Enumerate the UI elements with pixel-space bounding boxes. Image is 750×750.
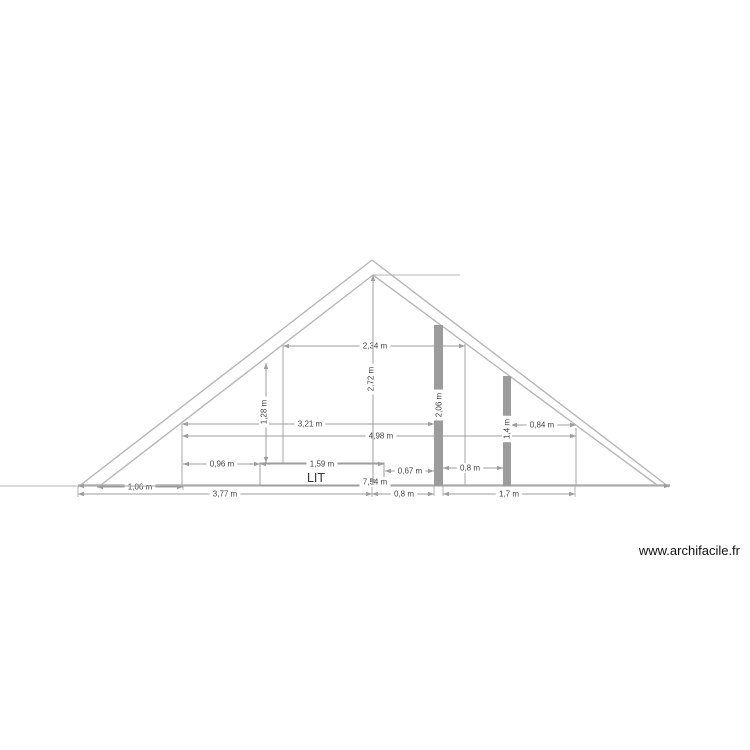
dim-084m-3-label: 0,84 m (527, 420, 558, 430)
dim-08m-7-arrow-left (443, 466, 449, 470)
room-label: LIT (307, 471, 325, 485)
dim-377m-10-arrow-left (78, 492, 84, 496)
dim-234m-0-label: 2,34 m (360, 341, 391, 351)
dim-08m-11-label: 0,8 m (391, 489, 417, 499)
dim-067m-6-arrow-right (428, 469, 434, 473)
dim-067m-6-label: 0,67 m (395, 466, 426, 476)
dim-106m-8-label-text: 1,06 m (128, 483, 153, 492)
dim-106m-8-label: 1,06 m (125, 482, 156, 492)
dim-321m-1-arrow-right (428, 422, 434, 426)
dim-377m-10-label-text: 3,77 m (213, 490, 238, 499)
roof-outer-left-line (78, 260, 372, 487)
dim-128m-1-arrow-top (264, 363, 268, 369)
dim-498m-2-label: 4,98 m (366, 431, 397, 441)
dim-754m-9-label: 7,54 m (360, 477, 391, 487)
dim-17m-12-arrow-left (443, 492, 449, 496)
post-short-label: 1,4 m (502, 416, 512, 442)
watermark: www.archifacile.fr (639, 543, 740, 558)
roof-inner-left-line (101, 275, 373, 485)
roof-inner-right-line (373, 275, 657, 485)
dim-754m-9-label-text: 7,54 m (363, 478, 388, 487)
roof-outer-right-line (372, 260, 669, 487)
dim-08m-11-arrow-right (428, 492, 434, 496)
dim-272m-0-label-text: 2,72 m (367, 366, 376, 391)
dim-067m-6-arrow-left (385, 469, 391, 473)
dim-234m-0-arrow-right (459, 344, 465, 348)
dim-067m-6-label-text: 0,67 m (398, 467, 423, 476)
dim-234m-0-label-text: 2,34 m (363, 342, 388, 351)
roof-section-drawing: 2,34 m3,21 m4,98 m0,84 m0,96 m1,59 m0,67… (0, 0, 750, 750)
dim-17m-12-label-text: 1,7 m (499, 490, 519, 499)
dim-498m-2-label-text: 4,98 m (369, 432, 394, 441)
dim-096m-4-arrow-right (254, 462, 260, 466)
dim-272m-0-label: 2,72 m (366, 364, 376, 395)
dim-321m-1-label-text: 3,21 m (298, 420, 323, 429)
dim-377m-10-arrow-right (366, 492, 372, 496)
post-tall-label: 2,06 m (434, 390, 444, 421)
dim-128m-1-arrow-bottom (264, 457, 268, 463)
dim-17m-12-label: 1,7 m (496, 489, 522, 499)
dim-159m-5-label-text: 1,59 m (310, 460, 335, 469)
dim-17m-12-arrow-right (569, 492, 575, 496)
dim-321m-1-label: 3,21 m (295, 419, 326, 429)
dim-498m-2-arrow-left (182, 434, 188, 438)
dim-128m-1-label: 1,28 m (259, 397, 269, 428)
dim-08m-7-label-text: 0,8 m (460, 464, 480, 473)
dim-159m-5-label: 1,59 m (307, 459, 338, 469)
dim-08m-7-label: 0,8 m (457, 463, 483, 473)
room-label-text: LIT (307, 471, 325, 485)
dim-096m-4-arrow-left (183, 462, 189, 466)
dim-096m-4-label-text: 0,96 m (210, 460, 235, 469)
archifacile-plan-page: 2,34 m3,21 m4,98 m0,84 m0,96 m1,59 m0,67… (0, 0, 750, 750)
dim-08m-11-label-text: 0,8 m (394, 490, 414, 499)
dim-08m-7-arrow-right (497, 466, 503, 470)
dim-377m-10-label: 3,77 m (210, 489, 241, 499)
post-short-label-text: 1,4 m (503, 419, 512, 439)
dim-498m-2-arrow-right (570, 434, 576, 438)
dim-08m-11-arrow-left (372, 492, 378, 496)
dim-096m-4-label: 0,96 m (207, 459, 238, 469)
dim-084m-3-label-text: 0,84 m (530, 421, 555, 430)
post-tall-label-text: 2,06 m (435, 392, 444, 417)
dim-128m-1-label-text: 1,28 m (260, 399, 269, 424)
